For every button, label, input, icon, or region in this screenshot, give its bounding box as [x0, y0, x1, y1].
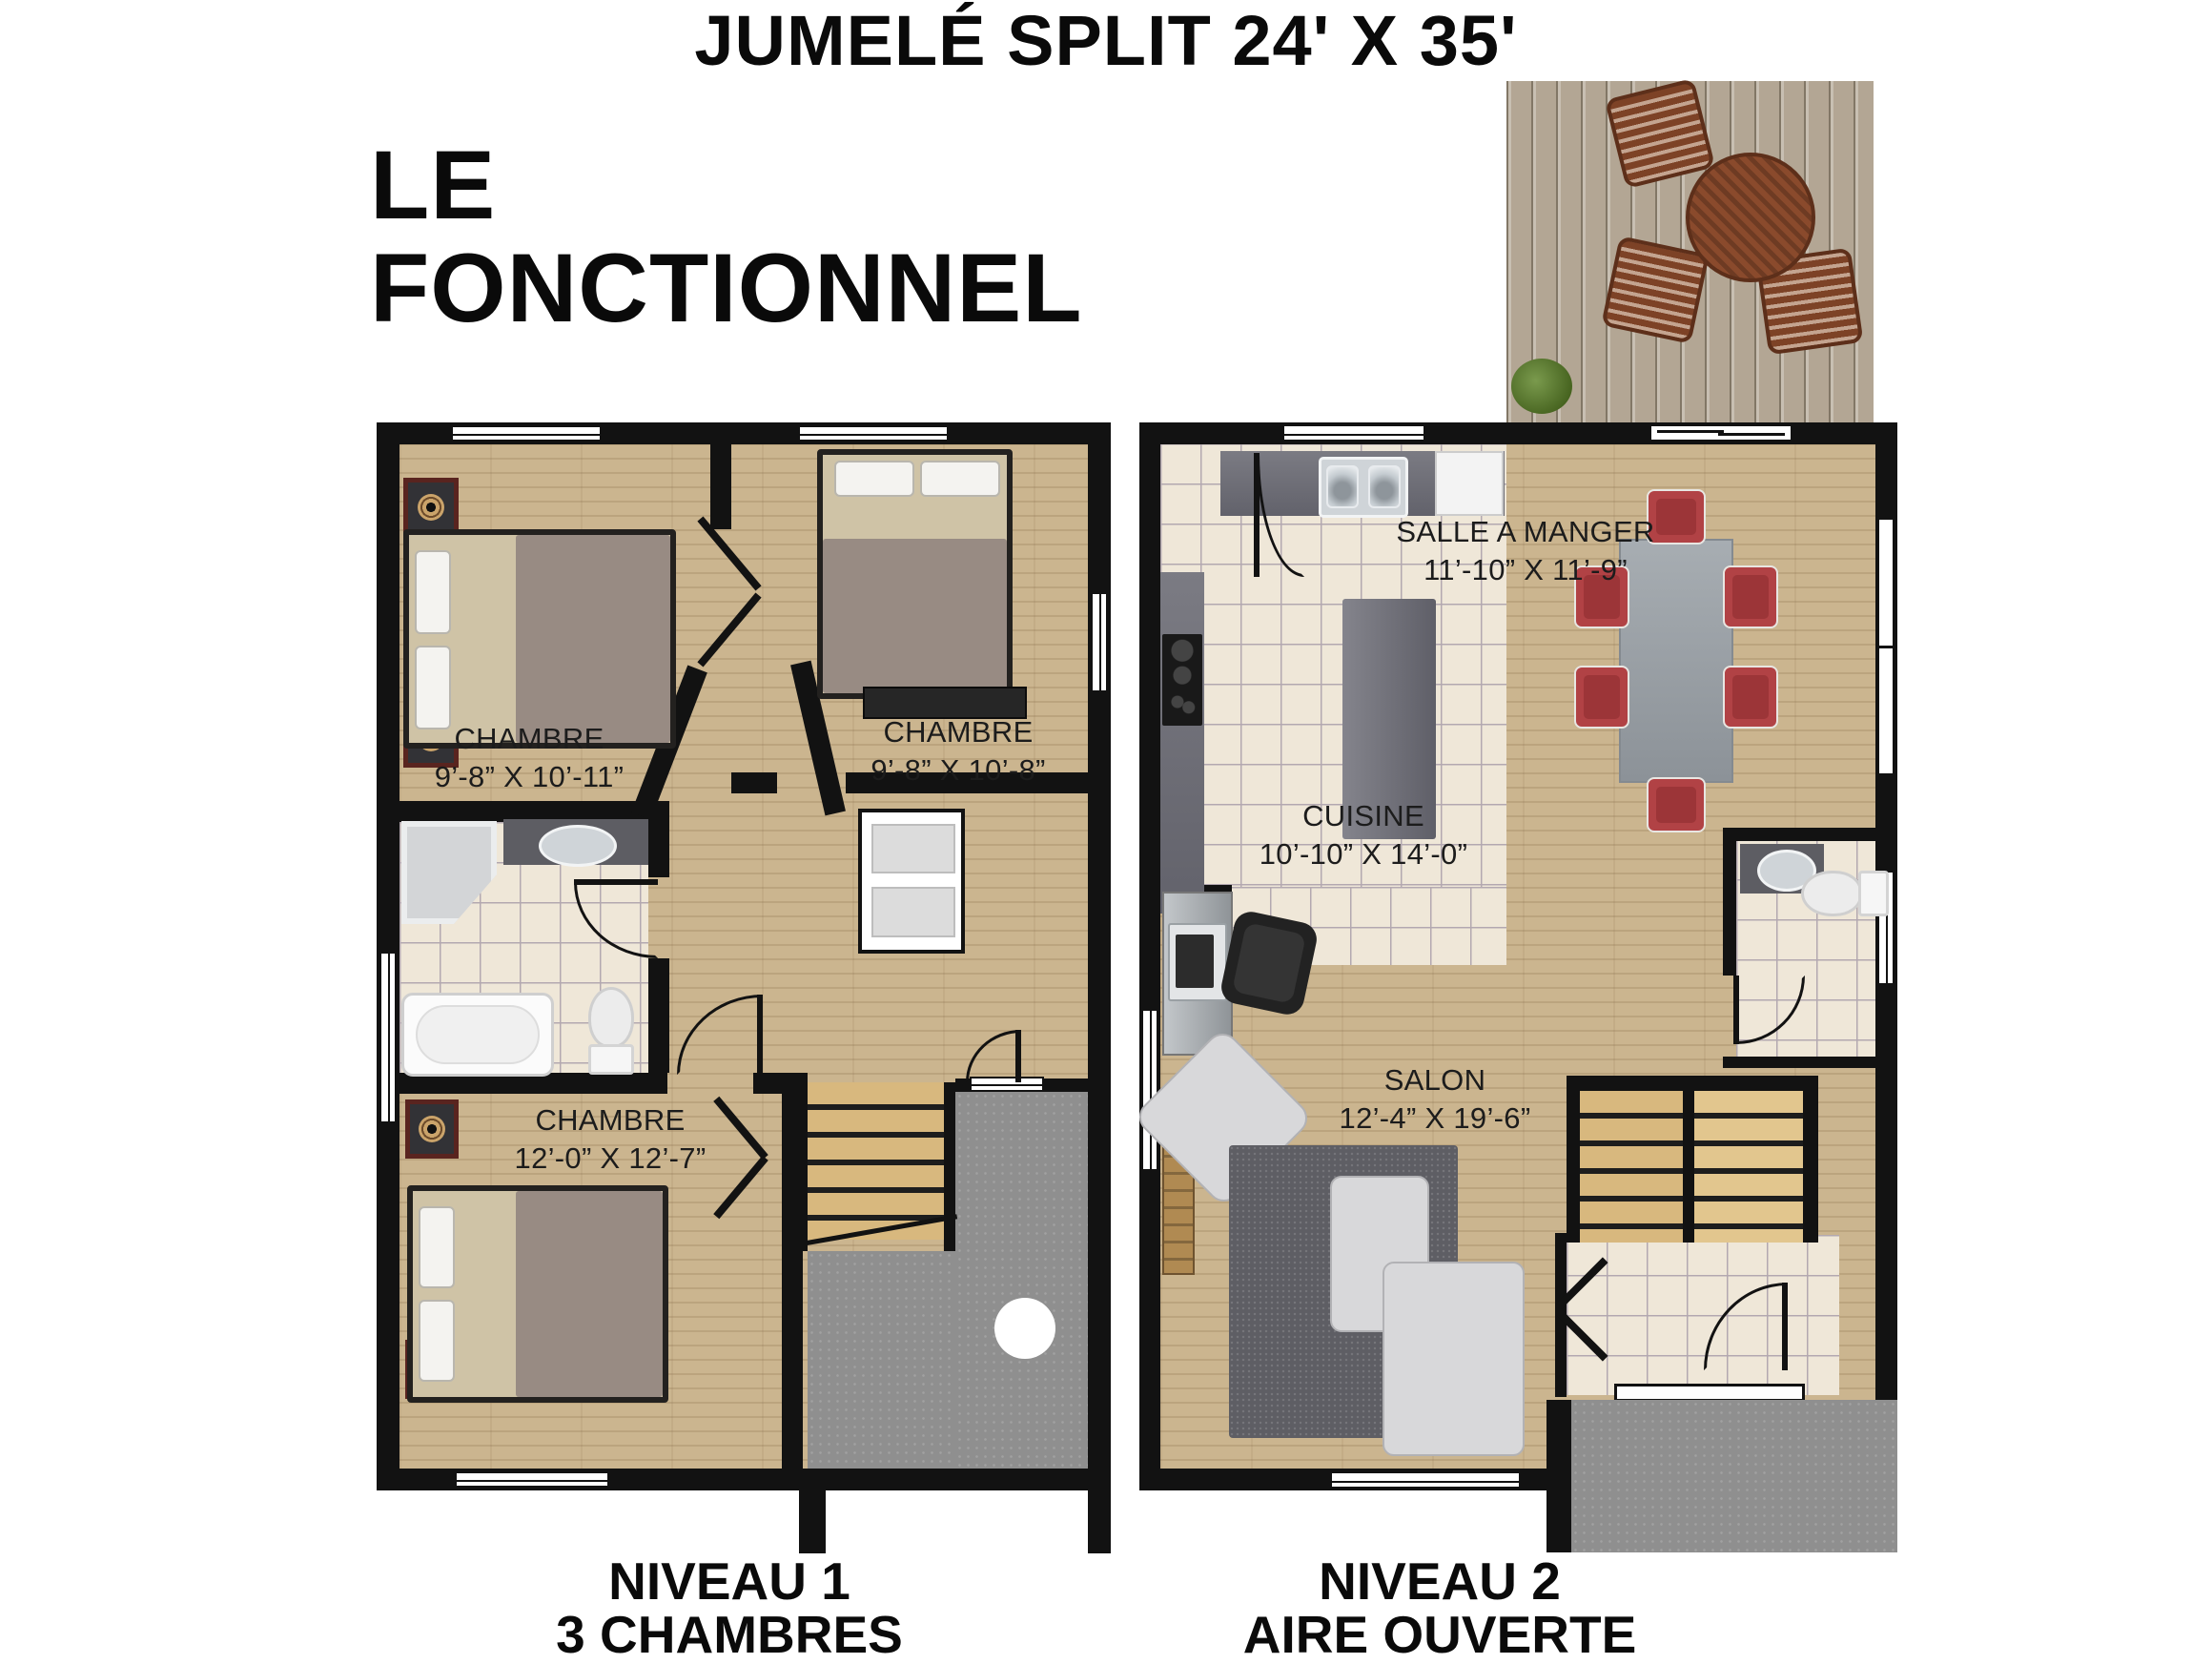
dining-chair-icon: [1723, 666, 1778, 729]
room-dims: 9’-8” X 10’-8”: [820, 751, 1096, 790]
wall-art-icon: [405, 1099, 459, 1159]
patio-table-icon: [1686, 153, 1815, 282]
closet-shelves: [858, 809, 965, 954]
wall: [648, 958, 669, 1073]
level2-caption: NIVEAU 2 AIRE OUVERTE: [1230, 1554, 1649, 1661]
room-label-chambre-1: CHAMBRE 9’-8” X 10’-11”: [386, 720, 672, 796]
room-name: CHAMBRE: [386, 720, 672, 758]
wall: [1723, 828, 1875, 841]
porch: [799, 1490, 1111, 1553]
level2-caption-line1: NIVEAU 2: [1230, 1554, 1649, 1608]
room-name: CHAMBRE: [467, 1101, 753, 1140]
room-label-salle-a-manger: SALLE A MANGER 11’-10” X 11’-9”: [1387, 513, 1664, 589]
toilet-icon: [1801, 873, 1887, 920]
wall: [710, 422, 731, 529]
patio-chair-icon: [1605, 78, 1715, 189]
laptop-icon: [1168, 923, 1227, 1001]
pillow-icon: [419, 1300, 455, 1382]
dining-chair-icon: [1723, 565, 1778, 628]
kitchen-counter: [1160, 572, 1204, 914]
model-name-line2: FONCTIONNEL: [370, 236, 1083, 339]
bush-icon: [1511, 359, 1572, 414]
window: [379, 952, 397, 1123]
door-leaf: [1733, 976, 1739, 1044]
wall: [731, 772, 777, 793]
room-label-salon: SALON 12’-4” X 19’-6”: [1297, 1061, 1573, 1138]
door-leaf: [757, 995, 763, 1075]
level1-caption-line1: NIVEAU 1: [520, 1554, 939, 1608]
blanket-icon: [823, 539, 1007, 693]
level1-caption: NIVEAU 1 3 CHAMBRES: [520, 1554, 939, 1661]
floor-plan-level-1: CHAMBRE 9’-8” X 10’-11” CHAMBRE 9’-8” X …: [377, 422, 1111, 1490]
staircase: [1694, 1091, 1803, 1243]
door-leaf: [1015, 1030, 1021, 1082]
room-dims: 11’-10” X 11’-9”: [1387, 551, 1664, 589]
dining-chair-icon: [1574, 666, 1629, 729]
bathtub-icon: [401, 993, 554, 1077]
window: [1877, 518, 1895, 775]
porch-concrete: [1546, 1400, 1897, 1552]
window: [1141, 1009, 1158, 1171]
floor-plan-level-2: SALLE A MANGER 11’-10” X 11’-9” CUISINE …: [1139, 422, 1897, 1490]
model-name: LE FONCTIONNEL: [370, 134, 1083, 339]
room-name: CHAMBRE: [820, 713, 1096, 751]
level2-caption-line2: AIRE OUVERTE: [1230, 1608, 1649, 1661]
pillow-icon: [834, 461, 914, 497]
room-label-cuisine: CUISINE 10’-10” X 14’-0”: [1225, 797, 1502, 873]
room-dims: 9’-8” X 10’-11”: [386, 758, 672, 796]
kitchen-sink-icon: [1319, 457, 1408, 518]
deck: [1506, 81, 1874, 422]
room-dims: 10’-10” X 14’-0”: [1225, 835, 1502, 873]
wall-art-icon: [403, 478, 459, 537]
toilet-icon: [584, 987, 632, 1073]
window: [451, 425, 602, 442]
room-dims: 12’-4” X 19’-6”: [1297, 1099, 1573, 1138]
window: [1091, 592, 1108, 692]
sofa: [1382, 1262, 1525, 1456]
blanket-icon: [516, 1191, 663, 1397]
page-title: JUMELÉ SPLIT 24' X 35': [0, 0, 2212, 81]
model-name-line1: LE: [370, 134, 1083, 236]
refrigerator-icon: [1435, 451, 1504, 516]
patio-chair-icon: [1601, 236, 1710, 344]
water-heater-icon: [994, 1298, 1055, 1359]
wall: [1139, 422, 1160, 1490]
window: [1330, 1471, 1521, 1489]
wall: [796, 1082, 808, 1251]
room-name: SALLE A MANGER: [1387, 513, 1664, 551]
door-leaf: [574, 879, 658, 885]
cooktop-icon: [1162, 634, 1202, 726]
window: [455, 1471, 609, 1488]
bed: [403, 529, 676, 749]
door-leaf: [1254, 453, 1260, 577]
bed: [407, 1185, 668, 1403]
room-label-chambre-2: CHAMBRE 9’-8” X 10’-8”: [820, 713, 1096, 790]
pillow-icon: [920, 461, 1000, 497]
staircase: [806, 1082, 944, 1240]
wall: [1567, 1076, 1816, 1091]
wall: [1088, 422, 1111, 1490]
window: [1282, 424, 1425, 442]
wall: [1683, 1091, 1694, 1243]
room-name: SALON: [1297, 1061, 1573, 1099]
wall: [1803, 1076, 1818, 1243]
pillow-icon: [419, 1206, 455, 1288]
door-leaf: [1782, 1283, 1788, 1370]
room-label-chambre-3: CHAMBRE 12’-0” X 12’-7”: [467, 1101, 753, 1178]
entry-concrete-floor: [808, 1251, 955, 1469]
wall: [1723, 1057, 1875, 1068]
level1-caption-line2: 3 CHAMBRES: [520, 1608, 939, 1661]
room-name: CUISINE: [1225, 797, 1502, 835]
patio-door: [1649, 424, 1792, 442]
window: [798, 425, 949, 442]
foyer-floor: [1567, 1235, 1839, 1395]
bed: [817, 449, 1013, 699]
pillow-icon: [415, 550, 451, 634]
bathroom-sink-icon: [539, 825, 617, 867]
room-dims: 12’-0” X 12’-7”: [467, 1140, 753, 1178]
dining-chair-icon: [1647, 777, 1706, 832]
wall: [1723, 828, 1736, 976]
pillow-icon: [415, 646, 451, 729]
wall: [944, 1082, 955, 1251]
blanket-icon: [516, 535, 670, 743]
staircase: [1580, 1091, 1683, 1243]
entry-concrete-floor: [955, 1092, 1088, 1469]
